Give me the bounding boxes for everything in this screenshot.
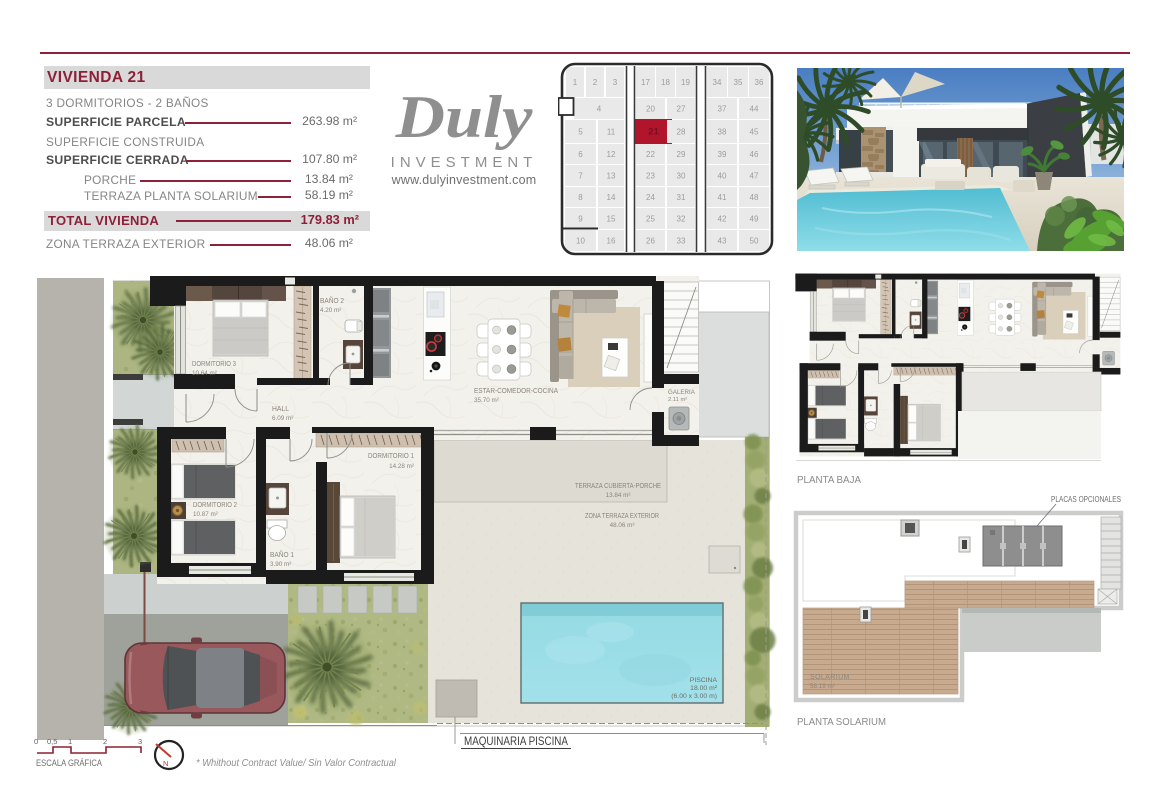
svg-text:0,5: 0,5 — [47, 737, 57, 746]
svg-text:35.70 m²: 35.70 m² — [474, 397, 499, 404]
svg-text:BAÑO 2: BAÑO 2 — [320, 296, 344, 305]
svg-text:46: 46 — [750, 150, 759, 159]
svg-text:50: 50 — [750, 237, 759, 246]
svg-text:1: 1 — [573, 78, 578, 87]
svg-text:40: 40 — [718, 172, 727, 181]
svg-text:HALL: HALL — [272, 406, 289, 413]
svg-text:MAQUINARIA PISCINA: MAQUINARIA PISCINA — [464, 734, 568, 748]
svg-text:N: N — [163, 759, 168, 768]
svg-text:BAÑO 1: BAÑO 1 — [270, 550, 294, 559]
svg-text:* Whithout Contract Value/ Si: * Whithout Contract Value/ Sin Valor Con… — [196, 757, 397, 769]
svg-text:1: 1 — [68, 737, 72, 746]
svg-text:10: 10 — [576, 237, 585, 246]
svg-text:7: 7 — [578, 172, 583, 181]
svg-text:49: 49 — [750, 215, 759, 224]
svg-text:18.00 m²: 18.00 m² — [690, 685, 718, 692]
svg-text:SOLARIUM: SOLARIUM — [810, 674, 850, 681]
svg-text:ESCALA GRÁFICA: ESCALA GRÁFICA — [36, 758, 102, 768]
svg-text:PLACAS OPCIONALES: PLACAS OPCIONALES — [1051, 495, 1121, 504]
svg-text:14: 14 — [607, 193, 616, 202]
svg-text:39: 39 — [718, 150, 727, 159]
svg-text:23: 23 — [646, 172, 655, 181]
svg-text:ESTAR-COMEDOR-COCINA: ESTAR-COMEDOR-COCINA — [474, 388, 558, 395]
svg-text:27: 27 — [677, 105, 686, 114]
svg-text:13.84 m²: 13.84 m² — [606, 492, 631, 499]
svg-text:43: 43 — [718, 237, 727, 246]
svg-text:31: 31 — [677, 193, 686, 202]
svg-text:(6.00 x 3.00 m): (6.00 x 3.00 m) — [671, 693, 717, 700]
svg-text:45: 45 — [750, 128, 759, 137]
svg-text:8: 8 — [578, 193, 583, 202]
svg-text:TERRAZA CUBIERTA-PORCHE: TERRAZA CUBIERTA-PORCHE — [575, 483, 661, 490]
svg-text:PLANTA BAJA: PLANTA BAJA — [797, 474, 861, 486]
svg-text:14.28 m²: 14.28 m² — [389, 463, 414, 470]
svg-text:3.90 m²: 3.90 m² — [270, 561, 291, 568]
svg-text:28: 28 — [677, 128, 686, 137]
svg-text:3: 3 — [613, 78, 618, 87]
svg-text:42: 42 — [718, 215, 727, 224]
svg-text:48: 48 — [750, 193, 759, 202]
svg-text:2: 2 — [593, 78, 598, 87]
svg-text:9: 9 — [578, 215, 583, 224]
svg-text:34: 34 — [713, 78, 722, 87]
svg-text:2.11 m²: 2.11 m² — [668, 397, 687, 403]
svg-text:PISCINA: PISCINA — [690, 677, 718, 684]
svg-text:4: 4 — [597, 105, 602, 114]
svg-text:15: 15 — [607, 215, 616, 224]
svg-text:DORMITORIO 1: DORMITORIO 1 — [368, 453, 414, 460]
svg-text:58.19 m²: 58.19 m² — [810, 683, 835, 690]
svg-text:12: 12 — [607, 150, 616, 159]
svg-text:DORMITORIO 2: DORMITORIO 2 — [193, 502, 237, 509]
svg-text:0: 0 — [34, 737, 38, 746]
svg-text:36: 36 — [755, 78, 764, 87]
svg-text:38: 38 — [718, 128, 727, 137]
svg-text:37: 37 — [718, 105, 727, 114]
svg-text:47: 47 — [750, 172, 759, 181]
svg-text:10.87 m²: 10.87 m² — [193, 511, 218, 518]
svg-text:48.06 m²: 48.06 m² — [610, 522, 635, 529]
svg-text:41: 41 — [718, 193, 727, 202]
svg-text:35: 35 — [734, 78, 743, 87]
svg-text:13: 13 — [607, 172, 616, 181]
svg-text:18: 18 — [661, 78, 670, 87]
svg-text:20: 20 — [646, 105, 655, 114]
svg-text:21: 21 — [648, 127, 659, 138]
svg-text:6: 6 — [578, 150, 583, 159]
svg-text:19: 19 — [681, 78, 690, 87]
svg-text:DORMITORIO 3: DORMITORIO 3 — [192, 361, 236, 368]
svg-text:3: 3 — [138, 737, 142, 746]
svg-text:25: 25 — [646, 215, 655, 224]
svg-text:11: 11 — [607, 128, 616, 137]
svg-text:44: 44 — [750, 105, 759, 114]
svg-text:16: 16 — [607, 237, 616, 246]
svg-text:GALERIA: GALERIA — [668, 389, 696, 396]
svg-text:PLANTA SOLARIUM: PLANTA SOLARIUM — [797, 716, 886, 728]
svg-text:32: 32 — [677, 215, 686, 224]
svg-text:24: 24 — [646, 193, 655, 202]
svg-text:2: 2 — [103, 737, 107, 746]
svg-text:ZONA TERRAZA EXTERIOR: ZONA TERRAZA EXTERIOR — [585, 513, 659, 520]
svg-text:5: 5 — [578, 128, 583, 137]
svg-text:26: 26 — [646, 237, 655, 246]
svg-text:4.20 m²: 4.20 m² — [320, 307, 341, 314]
svg-text:30: 30 — [677, 172, 686, 181]
svg-text:6.09 m²: 6.09 m² — [272, 415, 293, 422]
svg-text:17: 17 — [641, 78, 650, 87]
svg-text:33: 33 — [677, 237, 686, 246]
svg-text:22: 22 — [646, 150, 655, 159]
svg-text:10.64 m²: 10.64 m² — [192, 370, 217, 377]
svg-text:29: 29 — [677, 150, 686, 159]
